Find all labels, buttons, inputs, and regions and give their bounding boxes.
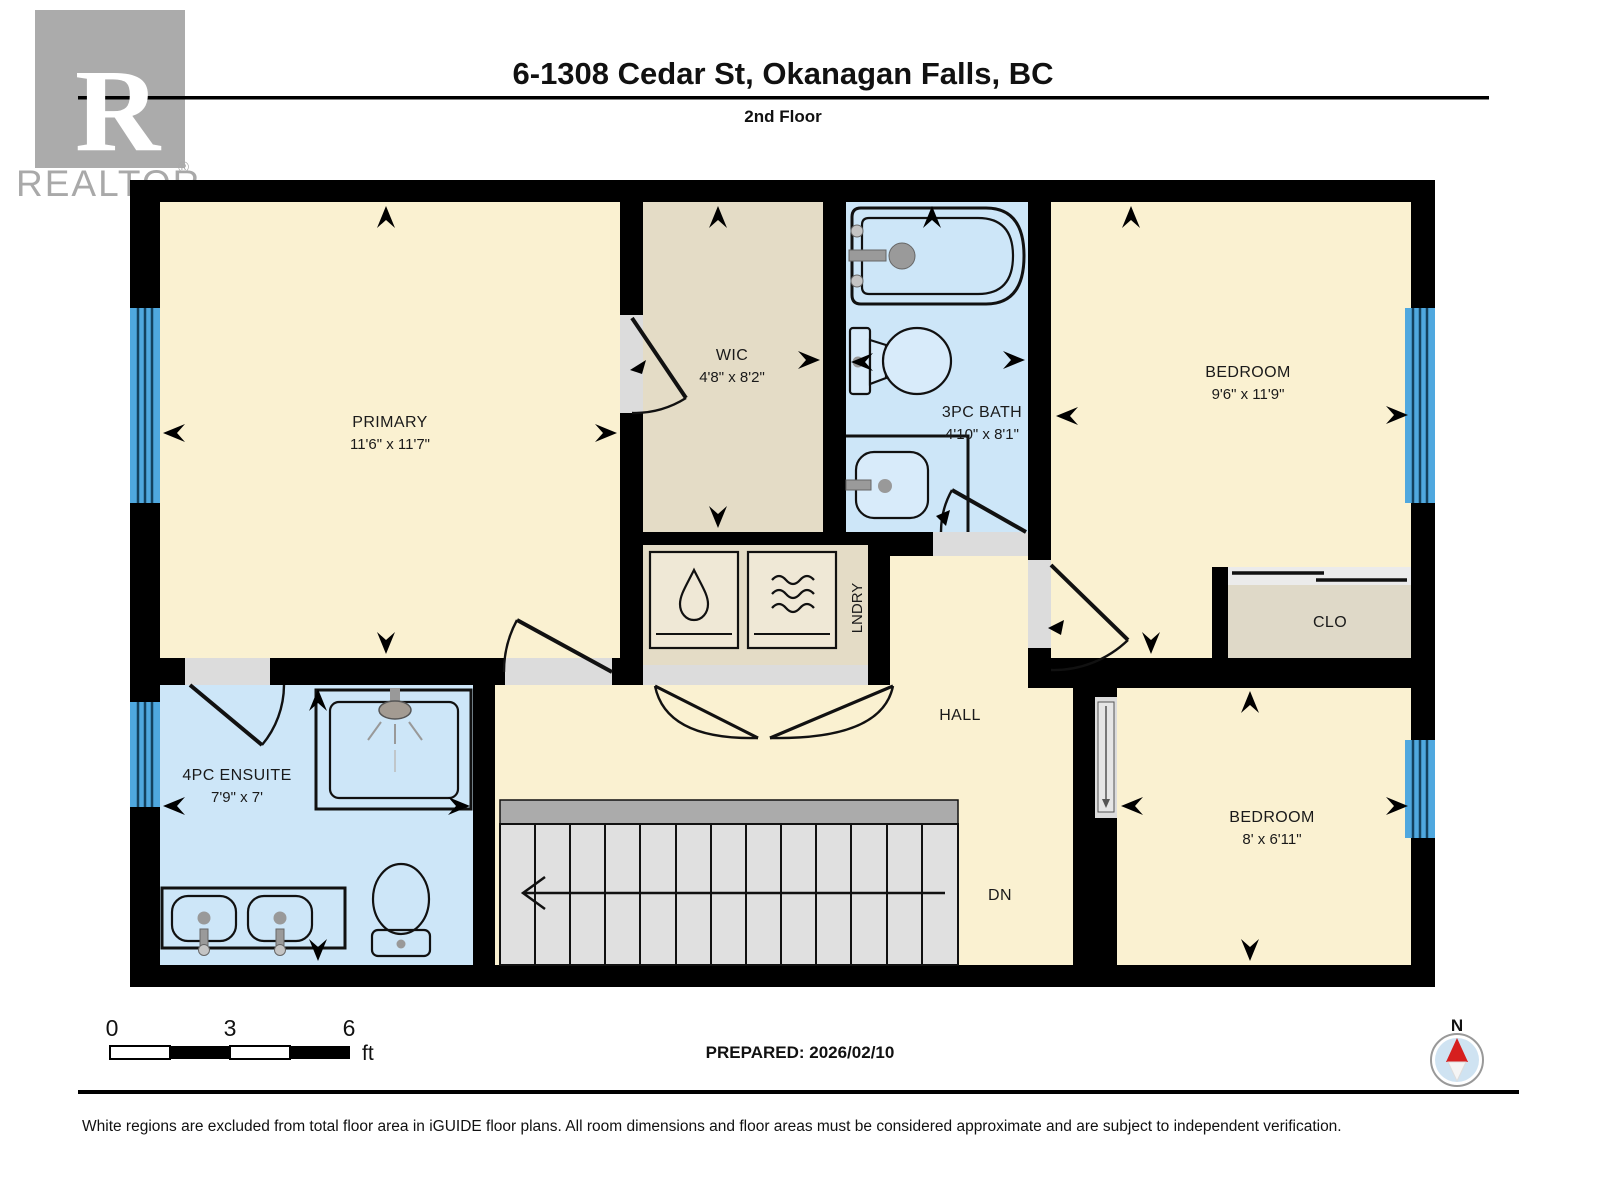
stairs-handrail: [500, 800, 958, 824]
prepared-date: PREPARED: 2026/02/10: [706, 1043, 895, 1062]
bedroom-top-label: BEDROOM: [1205, 364, 1290, 381]
closet-door-rail: [1228, 567, 1411, 585]
wic-label: WIC: [716, 347, 748, 364]
stairs-down-label: DN: [988, 887, 1012, 904]
laundry-label: LNDRY: [849, 583, 866, 634]
room-hall-east: [1028, 688, 1073, 965]
bath-doorway: [933, 532, 1028, 556]
scale-tick-3: 3: [224, 1015, 237, 1041]
floor-label: 2nd Floor: [744, 107, 822, 126]
hall-label: HALL: [939, 707, 981, 724]
room-bedroom-bottom: [1117, 688, 1411, 965]
scale-tick-6: 6: [343, 1015, 356, 1041]
room-bedroom-top: [1051, 202, 1411, 567]
header-divider: [78, 96, 1489, 100]
primary-label: PRIMARY: [352, 414, 427, 431]
stairs-treads: [500, 824, 958, 965]
floor-plan-page: R REALTOR ® 6-1308 Cedar St, Okanagan Fa…: [0, 0, 1600, 1200]
ensuite-label: 4PC ENSUITE: [182, 767, 291, 784]
registered-mark-icon: ®: [178, 159, 189, 176]
window-ensuite: [130, 702, 160, 807]
scale-bar: 0 3 6 ft: [106, 1015, 374, 1065]
ensuite-doorway: [185, 658, 270, 685]
closet-label: CLO: [1313, 614, 1347, 631]
bedroom-top-doorway: [1028, 560, 1051, 648]
footer-divider: [78, 1090, 1519, 1094]
primary-dims: 11'6" x 11'7": [350, 436, 430, 453]
floor-plan-svg: R REALTOR ® 6-1308 Cedar St, Okanagan Fa…: [0, 0, 1600, 1200]
stairs: [500, 800, 958, 965]
bedroom-bottom-label: BEDROOM: [1229, 809, 1314, 826]
bath-dims: 4'10" x 8'1": [945, 426, 1019, 443]
disclaimer-text: White regions are excluded from total fl…: [82, 1118, 1342, 1135]
wic-dims: 4'8" x 8'2": [699, 369, 765, 386]
bedroom-bottom-pocket-door: [1098, 702, 1114, 812]
realtor-logo-r: R: [75, 45, 162, 176]
bedroom-bottom-dims: 8' x 6'11": [1242, 831, 1301, 848]
dryer-icon: [748, 552, 836, 648]
window-bedroom-top: [1405, 308, 1435, 503]
window-bedroom-bottom: [1405, 740, 1435, 838]
bedroom-top-dims: 9'6" x 11'9": [1212, 386, 1285, 403]
bath-label: 3PC BATH: [942, 404, 1022, 421]
compass-icon: N: [1431, 1016, 1483, 1086]
footer: White regions are excluded from total fl…: [78, 1090, 1519, 1135]
room-wic: [643, 202, 823, 532]
laundry-opening: [643, 665, 868, 685]
ensuite-dims: 7'9" x 7': [211, 789, 263, 806]
page-title: 6-1308 Cedar St, Okanagan Falls, BC: [513, 56, 1054, 91]
header: R REALTOR ® 6-1308 Cedar St, Okanagan Fa…: [16, 10, 1489, 204]
room-bedroom-top-entry: [1051, 567, 1212, 658]
compass-north-label: N: [1451, 1016, 1463, 1035]
window-primary: [130, 308, 160, 503]
scale-unit: ft: [362, 1042, 374, 1065]
scale-tick-0: 0: [106, 1015, 119, 1041]
washer-icon: [650, 552, 738, 648]
